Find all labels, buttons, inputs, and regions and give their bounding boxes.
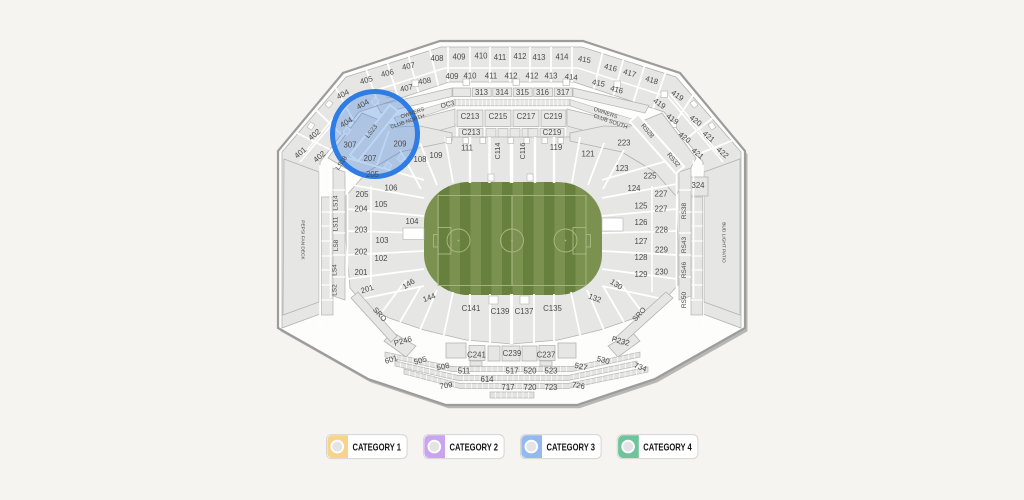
- svg-text:227: 227: [654, 190, 667, 199]
- svg-text:313: 313: [475, 88, 488, 97]
- svg-text:413: 413: [544, 72, 557, 81]
- svg-text:723: 723: [544, 383, 557, 392]
- svg-text:412: 412: [513, 52, 526, 61]
- svg-text:C139: C139: [491, 307, 510, 316]
- svg-text:105: 105: [374, 200, 388, 209]
- svg-text:411: 411: [485, 72, 497, 81]
- svg-text:410: 410: [463, 72, 477, 81]
- svg-text:204: 204: [354, 205, 368, 214]
- svg-text:201: 201: [354, 268, 367, 277]
- svg-text:106: 106: [384, 184, 397, 193]
- svg-text:126: 126: [634, 218, 647, 227]
- svg-text:316: 316: [536, 88, 549, 97]
- svg-text:720: 720: [523, 383, 537, 392]
- svg-text:408: 408: [418, 76, 432, 87]
- svg-text:RS38: RS38: [681, 202, 688, 219]
- svg-text:C135: C135: [543, 304, 562, 313]
- svg-text:C219: C219: [543, 128, 562, 137]
- svg-text:LS4: LS4: [332, 264, 339, 276]
- svg-text:614: 614: [480, 375, 494, 384]
- svg-text:202: 202: [354, 248, 367, 257]
- svg-text:207: 207: [363, 154, 376, 163]
- svg-text:C141: C141: [462, 304, 481, 313]
- svg-text:C239: C239: [503, 349, 522, 358]
- svg-text:C114: C114: [493, 143, 502, 160]
- svg-text:229: 229: [655, 246, 668, 255]
- svg-text:410: 410: [474, 52, 488, 61]
- svg-text:C137: C137: [515, 307, 534, 316]
- svg-text:223: 223: [617, 139, 630, 148]
- svg-text:RS50: RS50: [681, 291, 688, 308]
- svg-text:C237: C237: [537, 351, 556, 360]
- svg-text:409: 409: [452, 53, 465, 62]
- svg-text:109: 109: [429, 151, 442, 160]
- svg-text:413: 413: [532, 53, 545, 62]
- svg-text:BUD LIGHT PATIO: BUD LIGHT PATIO: [721, 222, 727, 263]
- svg-text:CATEGORY 3: CATEGORY 3: [547, 442, 596, 453]
- svg-text:C116: C116: [518, 143, 527, 160]
- svg-text:409: 409: [445, 72, 458, 81]
- svg-text:124: 124: [627, 184, 641, 193]
- svg-text:517: 517: [505, 367, 518, 376]
- svg-text:128: 128: [634, 253, 647, 262]
- svg-text:125: 125: [634, 202, 648, 211]
- svg-text:C217: C217: [517, 112, 536, 121]
- svg-text:C213: C213: [461, 112, 480, 121]
- svg-text:127: 127: [634, 237, 647, 246]
- svg-text:209: 209: [393, 140, 406, 149]
- svg-text:119: 119: [550, 143, 562, 152]
- svg-text:205: 205: [366, 170, 380, 179]
- svg-text:RS46: RS46: [681, 261, 688, 278]
- svg-text:317: 317: [556, 88, 569, 97]
- svg-text:CATEGORY 2: CATEGORY 2: [450, 442, 499, 453]
- svg-text:228: 228: [655, 226, 668, 235]
- svg-text:324: 324: [691, 181, 705, 190]
- svg-text:LS11: LS11: [333, 216, 340, 231]
- svg-text:315: 315: [516, 88, 530, 97]
- svg-text:103: 103: [375, 236, 388, 245]
- svg-text:129: 129: [634, 270, 647, 279]
- svg-text:111: 111: [461, 144, 473, 153]
- svg-text:520: 520: [523, 367, 537, 376]
- svg-text:411: 411: [494, 53, 506, 62]
- svg-text:121: 121: [581, 150, 594, 159]
- svg-text:717: 717: [501, 383, 514, 392]
- svg-text:414: 414: [555, 53, 569, 62]
- svg-text:412: 412: [525, 72, 538, 81]
- svg-text:LS8: LS8: [333, 239, 340, 251]
- svg-text:414: 414: [564, 72, 579, 82]
- svg-text:C219: C219: [544, 112, 563, 121]
- svg-text:203: 203: [354, 226, 367, 235]
- svg-text:523: 523: [544, 367, 557, 376]
- svg-text:307: 307: [343, 141, 356, 150]
- svg-text:PEPSI FAN DECK: PEPSI FAN DECK: [300, 220, 306, 260]
- svg-text:108: 108: [413, 155, 426, 164]
- svg-text:205: 205: [355, 190, 369, 199]
- svg-text:LS2: LS2: [332, 284, 339, 296]
- svg-text:CATEGORY 1: CATEGORY 1: [353, 442, 402, 453]
- svg-text:511: 511: [458, 367, 470, 376]
- svg-text:CATEGORY 4: CATEGORY 4: [643, 442, 692, 453]
- svg-text:314: 314: [495, 88, 509, 97]
- svg-text:408: 408: [430, 54, 443, 63]
- svg-text:102: 102: [374, 254, 387, 263]
- svg-text:225: 225: [643, 172, 657, 181]
- svg-text:RS43: RS43: [681, 236, 688, 253]
- svg-text:104: 104: [405, 217, 419, 226]
- svg-text:227: 227: [654, 205, 667, 214]
- svg-text:C213: C213: [462, 128, 481, 137]
- svg-text:412: 412: [504, 72, 517, 81]
- svg-text:C241: C241: [467, 351, 486, 360]
- svg-text:123: 123: [615, 164, 628, 173]
- svg-text:230: 230: [655, 268, 669, 277]
- svg-text:C215: C215: [489, 112, 508, 121]
- svg-text:LS14: LS14: [333, 195, 340, 211]
